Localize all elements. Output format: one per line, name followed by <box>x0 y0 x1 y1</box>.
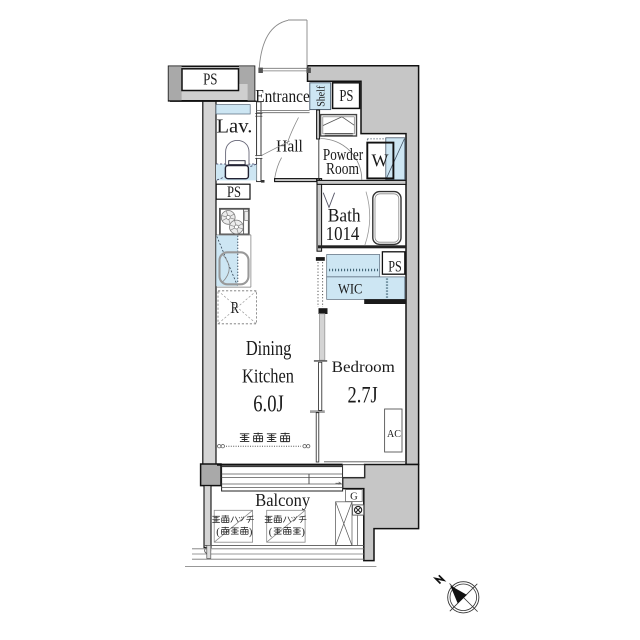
svg-text:Kitchen: Kitchen <box>242 365 294 387</box>
svg-text:Lav.: Lav. <box>216 117 252 138</box>
svg-text:Shelf: Shelf <box>314 86 328 107</box>
svg-text:6.0J: 6.0J <box>253 392 284 418</box>
svg-text:PS: PS <box>227 184 241 201</box>
svg-text:2.7J: 2.7J <box>348 383 378 408</box>
svg-text:PS: PS <box>339 86 353 105</box>
svg-text:Bedroom: Bedroom <box>332 359 395 376</box>
svg-text:(: ( <box>216 527 220 538</box>
svg-text:R: R <box>231 298 240 317</box>
svg-text:Balcony: Balcony <box>255 490 311 510</box>
svg-text:AC: AC <box>387 428 401 440</box>
svg-text:1014: 1014 <box>326 224 360 245</box>
svg-text:): ) <box>249 527 253 538</box>
svg-text:G: G <box>350 491 358 502</box>
svg-text:WIC: WIC <box>338 282 363 298</box>
svg-text:W: W <box>372 151 389 171</box>
svg-text:PS: PS <box>203 70 217 89</box>
svg-text:Dining: Dining <box>246 336 292 360</box>
svg-text:PS: PS <box>388 259 402 276</box>
svg-text:Room: Room <box>326 159 359 178</box>
svg-text:(: ( <box>269 527 273 538</box>
svg-text:): ) <box>301 527 305 538</box>
svg-text:Entrance: Entrance <box>255 86 310 106</box>
